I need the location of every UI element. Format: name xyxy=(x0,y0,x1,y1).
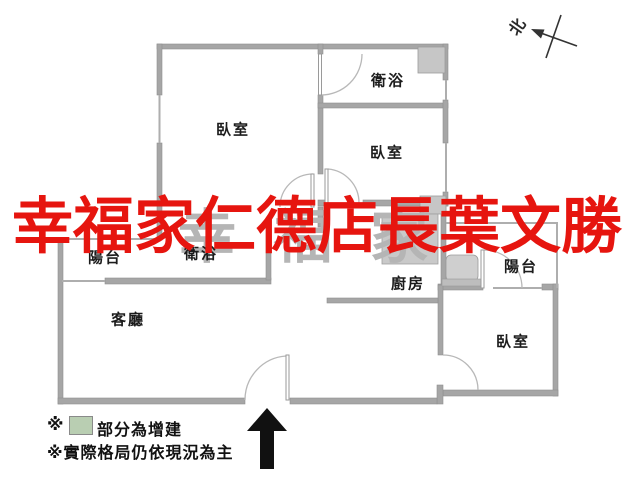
room-label-bedroom-bottom-right: 臥室 xyxy=(496,331,530,352)
legend-added-area-swatch xyxy=(69,416,93,435)
room-label-bathroom-top: 衛浴 xyxy=(371,70,405,91)
room-label-living-room: 客廳 xyxy=(111,309,145,330)
watermark-agent-text: 幸福家仁德店長葉文勝 xyxy=(12,196,622,257)
room-label-bedroom-top-right: 臥室 xyxy=(370,142,404,163)
legend-marker: ※ xyxy=(47,415,64,435)
legend-added-area-text: 部分為增建 xyxy=(97,416,182,440)
room-label-bedroom-top-left: 臥室 xyxy=(216,119,250,140)
north-compass-icon xyxy=(531,15,577,58)
floor-plan-page: 臥室 衛浴 臥室 陽台 衛浴 廚房 陽台 客廳 臥室 北 幸福家 幸福家仁德店長… xyxy=(0,0,640,480)
room-label-kitchen: 廚房 xyxy=(391,273,425,294)
entrance-arrow-icon xyxy=(247,408,287,469)
legend-note-text: ※實際格局仍依現況為主 xyxy=(47,439,234,463)
